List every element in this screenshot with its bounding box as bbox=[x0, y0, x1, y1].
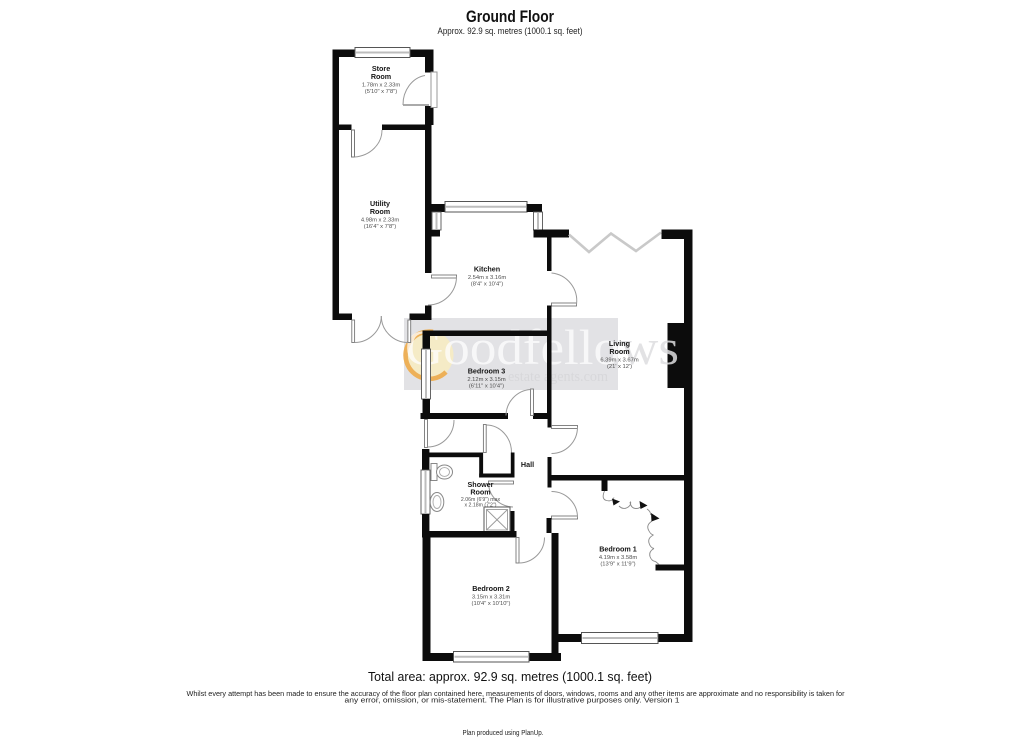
svg-text:(6'11" x 10'4"): (6'11" x 10'4") bbox=[469, 384, 504, 390]
svg-text:Bedroom 3: Bedroom 3 bbox=[468, 367, 506, 376]
svg-text:(16'4" x 7'8"): (16'4" x 7'8") bbox=[364, 224, 396, 230]
svg-text:6.39m x 3.67m: 6.39m x 3.67m bbox=[600, 358, 639, 364]
svg-text:Kitchen: Kitchen bbox=[474, 265, 500, 274]
svg-text:Room: Room bbox=[609, 347, 629, 356]
svg-text:1.78m x 2.33m: 1.78m x 2.33m bbox=[362, 83, 401, 89]
svg-text:Room: Room bbox=[371, 72, 391, 81]
svg-text:(13'9" x 11'9"): (13'9" x 11'9") bbox=[600, 562, 635, 568]
svg-text:(10'4" x 10'10"): (10'4" x 10'10") bbox=[472, 601, 511, 607]
svg-text:(8'4" x 10'4"): (8'4" x 10'4") bbox=[471, 282, 503, 288]
svg-text:Approx. 92.9 sq. metres (1000.: Approx. 92.9 sq. metres (1000.1 sq. feet… bbox=[438, 26, 583, 37]
svg-text:x 2.18m (7'2"): x 2.18m (7'2") bbox=[465, 503, 497, 509]
svg-text:Plan produced using PlanUp.: Plan produced using PlanUp. bbox=[463, 730, 544, 737]
svg-text:(21' x 12'): (21' x 12') bbox=[607, 364, 632, 370]
svg-text:Bedroom 1: Bedroom 1 bbox=[599, 545, 637, 554]
svg-text:Total area: approx. 92.9 sq. m: Total area: approx. 92.9 sq. metres (100… bbox=[368, 669, 652, 684]
svg-text:4.19m x 3.58m: 4.19m x 3.58m bbox=[599, 555, 638, 561]
svg-text:4.98m x 2.33m: 4.98m x 2.33m bbox=[361, 218, 400, 224]
svg-text:Bedroom 2: Bedroom 2 bbox=[472, 584, 510, 593]
svg-text:Hall: Hall bbox=[521, 460, 534, 469]
svg-text:estate agents.com: estate agents.com bbox=[508, 369, 608, 385]
svg-text:(5'10" x 7'8"): (5'10" x 7'8") bbox=[365, 89, 397, 95]
svg-text:2.54m x 3.16m: 2.54m x 3.16m bbox=[468, 275, 507, 281]
svg-text:3.15m x 3.31m: 3.15m x 3.31m bbox=[472, 595, 511, 601]
svg-text:Room: Room bbox=[370, 207, 390, 216]
svg-text:Room: Room bbox=[470, 488, 490, 497]
svg-text:any error, omission, or mis-st: any error, omission, or mis-statement. T… bbox=[345, 698, 680, 705]
svg-text:2.12m x 3.15m: 2.12m x 3.15m bbox=[467, 377, 506, 383]
svg-text:Ground Floor: Ground Floor bbox=[466, 7, 554, 26]
